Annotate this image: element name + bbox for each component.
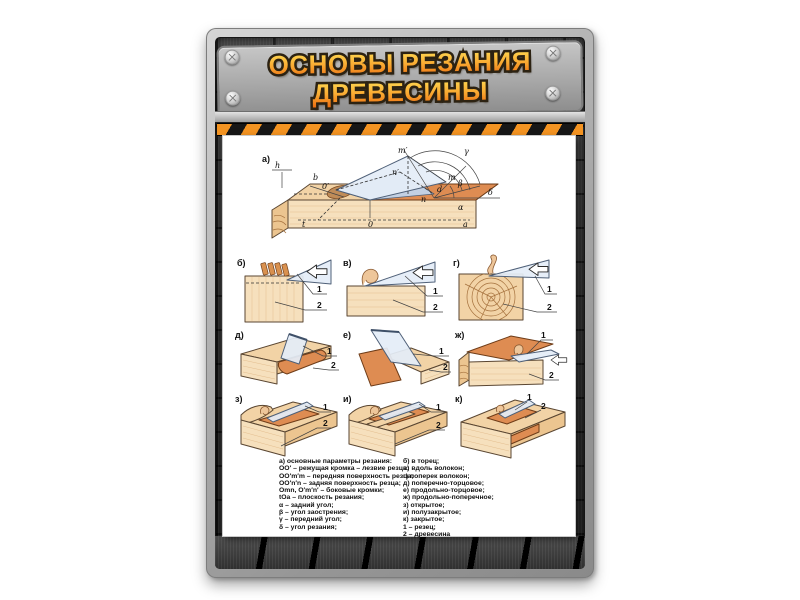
legend-line: и) полузакрытое; bbox=[403, 509, 533, 516]
legend-line: ОО′ – режущая кромка – лезвие резца; bbox=[279, 465, 403, 472]
plate-sill bbox=[215, 111, 585, 123]
label-alpha: α bbox=[458, 203, 464, 212]
callout-2: 2 bbox=[331, 360, 336, 370]
label-0-prime: 0′ bbox=[322, 182, 329, 191]
legend-line: в) вдоль волокон; bbox=[403, 465, 533, 472]
legend-line: г) поперек волокон; bbox=[403, 473, 533, 480]
callout-1: 1 bbox=[436, 402, 441, 412]
callout-2: 2 bbox=[547, 302, 552, 312]
figure-e-longitudinal-end-cutting: е) 1 2 bbox=[341, 326, 456, 392]
label-b: b bbox=[313, 173, 318, 182]
figure-v-along-grain: в) 1 2 bbox=[341, 254, 453, 324]
legend-line: ж) продольно-поперечное; bbox=[403, 494, 533, 501]
callout-2: 2 bbox=[436, 420, 441, 430]
stand-interior-planks: ОСНОВЫ РЕЗАНИЯОСНОВЫ РЕЗАНИЯ ДРЕВЕСИНЫДР… bbox=[215, 37, 585, 569]
legend-line: ОО′m′m – передняя поверхность резца; bbox=[279, 473, 403, 480]
bottom-planks bbox=[215, 536, 585, 569]
label-delta: δ bbox=[488, 188, 493, 197]
poster-sheet: а) h b 0′ m′ n′ bbox=[223, 136, 575, 536]
legend-line: е) продольно-торцовое; bbox=[403, 487, 533, 494]
figure-d-tag: д) bbox=[235, 330, 244, 340]
label-a: a bbox=[463, 220, 468, 229]
label-h: h bbox=[275, 161, 280, 170]
figure-a-cutting-parameters: а) h b 0′ m′ n′ bbox=[258, 142, 543, 257]
figure-b-tag: б) bbox=[237, 258, 246, 268]
callout-1: 1 bbox=[541, 330, 546, 340]
legend-right-column: б) в торец; в) вдоль волокон; г) поперек… bbox=[403, 458, 533, 538]
figure-zh-longitudinal-cross-cutting: ж) 1 2 bbox=[453, 326, 571, 392]
poster-stand-frame: ОСНОВЫ РЕЗАНИЯОСНОВЫ РЕЗАНИЯ ДРЕВЕСИНЫДР… bbox=[206, 28, 594, 578]
callout-2: 2 bbox=[433, 302, 438, 312]
figure-z-tag: з) bbox=[235, 394, 242, 404]
callout-1: 1 bbox=[327, 346, 332, 356]
label-n: n bbox=[421, 195, 426, 204]
legend-line: а) основные параметры резания: bbox=[279, 458, 403, 465]
callout-2: 2 bbox=[317, 300, 322, 310]
label-m-prime: m′ bbox=[398, 146, 408, 155]
title-plate: ОСНОВЫ РЕЗАНИЯОСНОВЫ РЕЗАНИЯ ДРЕВЕСИНЫДР… bbox=[216, 40, 583, 118]
callout-2: 2 bbox=[323, 418, 328, 428]
figure-b-end-cutting: б) 1 2 bbox=[235, 254, 335, 324]
title-line2: ДРЕВЕСИНЫ bbox=[312, 76, 488, 109]
legend-line: Оmn, О′m′n′ – боковые кромки; bbox=[279, 487, 403, 494]
legend-line: к) закрытое; bbox=[403, 516, 533, 523]
legend-left-column: а) основные параметры резания: ОО′ – реж… bbox=[279, 458, 403, 531]
figure-a-tag: а) bbox=[262, 154, 270, 164]
legend-line: tОа – плоскость резания; bbox=[279, 494, 403, 501]
figure-zh-tag: ж) bbox=[454, 330, 464, 340]
figure-i-tag: и) bbox=[343, 394, 352, 404]
callout-1: 1 bbox=[323, 402, 328, 412]
figure-g-tag: г) bbox=[453, 258, 460, 268]
label-m: m bbox=[448, 173, 456, 182]
figure-e-tag: е) bbox=[343, 330, 351, 340]
label-n-prime: n′ bbox=[392, 168, 399, 177]
poster-title: ОСНОВЫ РЕЗАНИЯОСНОВЫ РЕЗАНИЯ ДРЕВЕСИНЫДР… bbox=[219, 46, 582, 110]
figure-z-open-cutting: з) 1 2 bbox=[233, 390, 345, 460]
legend-line: γ – передний угол; bbox=[279, 516, 403, 523]
callout-1: 1 bbox=[433, 286, 438, 296]
callout-2: 2 bbox=[541, 401, 546, 411]
figure-g-across-grain: г) 1 2 bbox=[451, 254, 563, 324]
callout-2: 2 bbox=[443, 362, 448, 372]
legend-line: 2 – древесина bbox=[403, 531, 533, 538]
label-0: 0 bbox=[368, 220, 373, 229]
figure-i-semi-closed-cutting: и) 1 2 bbox=[341, 390, 456, 460]
label-d: d bbox=[437, 185, 442, 194]
page: { "header": { "title_line1": "ОСНОВЫ РЕЗ… bbox=[0, 0, 800, 600]
hazard-stripe bbox=[217, 123, 583, 136]
title-line1: ОСНОВЫ РЕЗАНИЯ bbox=[268, 46, 531, 80]
legend-line: δ – угол резания; bbox=[279, 524, 403, 531]
callout-1: 1 bbox=[317, 284, 322, 294]
figure-k-closed-cutting: к) 1 2 bbox=[453, 390, 571, 460]
figure-d-cross-end-cutting: д) 1 2 bbox=[233, 326, 345, 392]
callout-1: 1 bbox=[527, 392, 532, 402]
legend-line: б) в торец; bbox=[403, 458, 533, 465]
callout-1: 1 bbox=[439, 346, 444, 356]
callout-2: 2 bbox=[549, 370, 554, 380]
legend-line: д) поперечно-торцовое; bbox=[403, 480, 533, 487]
legend-line: 1 – резец; bbox=[403, 524, 533, 531]
end-grain-face bbox=[459, 352, 469, 386]
legend-line: α – задний угол; bbox=[279, 502, 403, 509]
legend-line: з) открытое; bbox=[403, 502, 533, 509]
figure-k-tag: к) bbox=[455, 394, 463, 404]
cutting-direction-arrow-icon bbox=[551, 355, 567, 366]
figure-v-tag: в) bbox=[343, 258, 352, 268]
callout-1: 1 bbox=[547, 284, 552, 294]
label-beta: β bbox=[457, 179, 463, 188]
label-gamma: γ bbox=[464, 147, 469, 156]
